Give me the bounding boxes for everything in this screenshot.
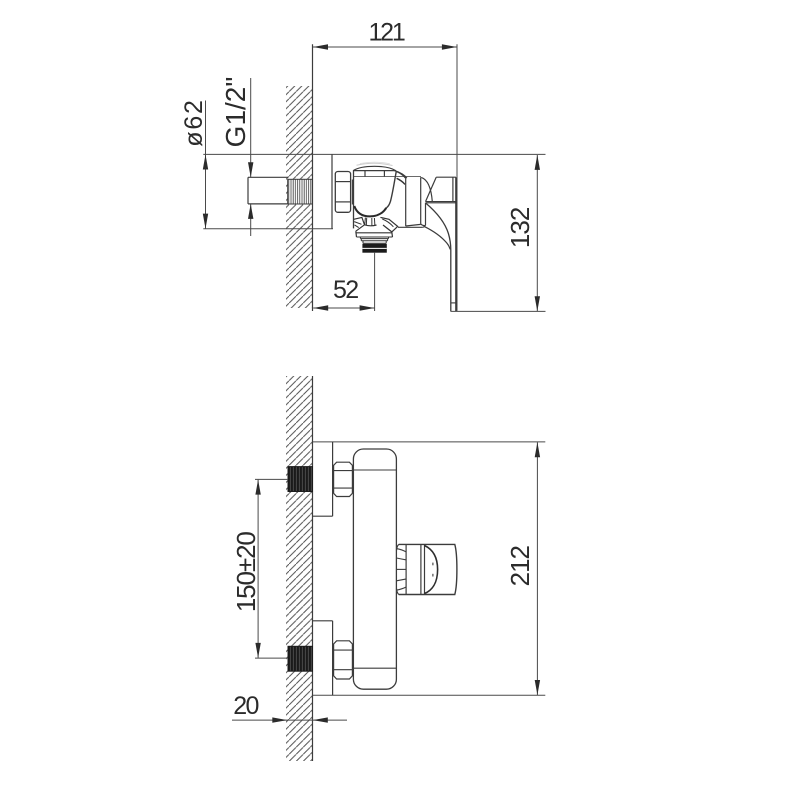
svg-text:G1/2": G1/2"	[220, 77, 251, 148]
svg-text:121: 121	[368, 18, 404, 46]
svg-text:212: 212	[505, 545, 535, 586]
svg-text:132: 132	[505, 207, 535, 248]
svg-text:ø62: ø62	[180, 98, 208, 146]
svg-text:20: 20	[233, 692, 258, 720]
svg-text:52: 52	[333, 276, 358, 304]
svg-text:150±20: 150±20	[231, 532, 261, 613]
